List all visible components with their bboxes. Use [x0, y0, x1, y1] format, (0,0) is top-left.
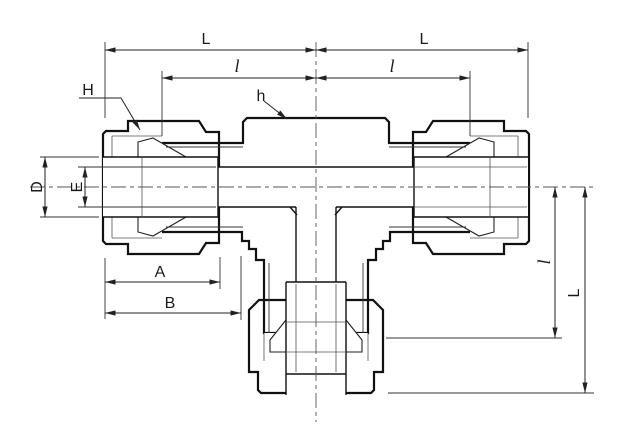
engineering-drawing-canvas: L L l l H h D E A B l L: [0, 0, 625, 438]
leader-h: [264, 101, 287, 119]
dim-label-E: E: [69, 182, 86, 193]
tee-fitting-section-drawing: L L l l H h D E A B l L: [0, 0, 625, 438]
dim-label-L-top-right: L: [420, 31, 429, 48]
dim-label-D: D: [29, 181, 46, 193]
dim-label-l-vertical: l: [534, 259, 554, 264]
dim-label-l-top-right: l: [389, 56, 394, 76]
dim-label-A: A: [155, 264, 166, 281]
leader-H: [79, 98, 140, 130]
dim-label-L-vertical: L: [566, 288, 583, 297]
dim-label-l-top-left: l: [234, 56, 239, 76]
dim-label-B: B: [165, 295, 176, 312]
dim-label-H: H: [82, 82, 94, 99]
dim-label-h: h: [257, 88, 266, 105]
dim-label-L-top-left: L: [202, 31, 211, 48]
